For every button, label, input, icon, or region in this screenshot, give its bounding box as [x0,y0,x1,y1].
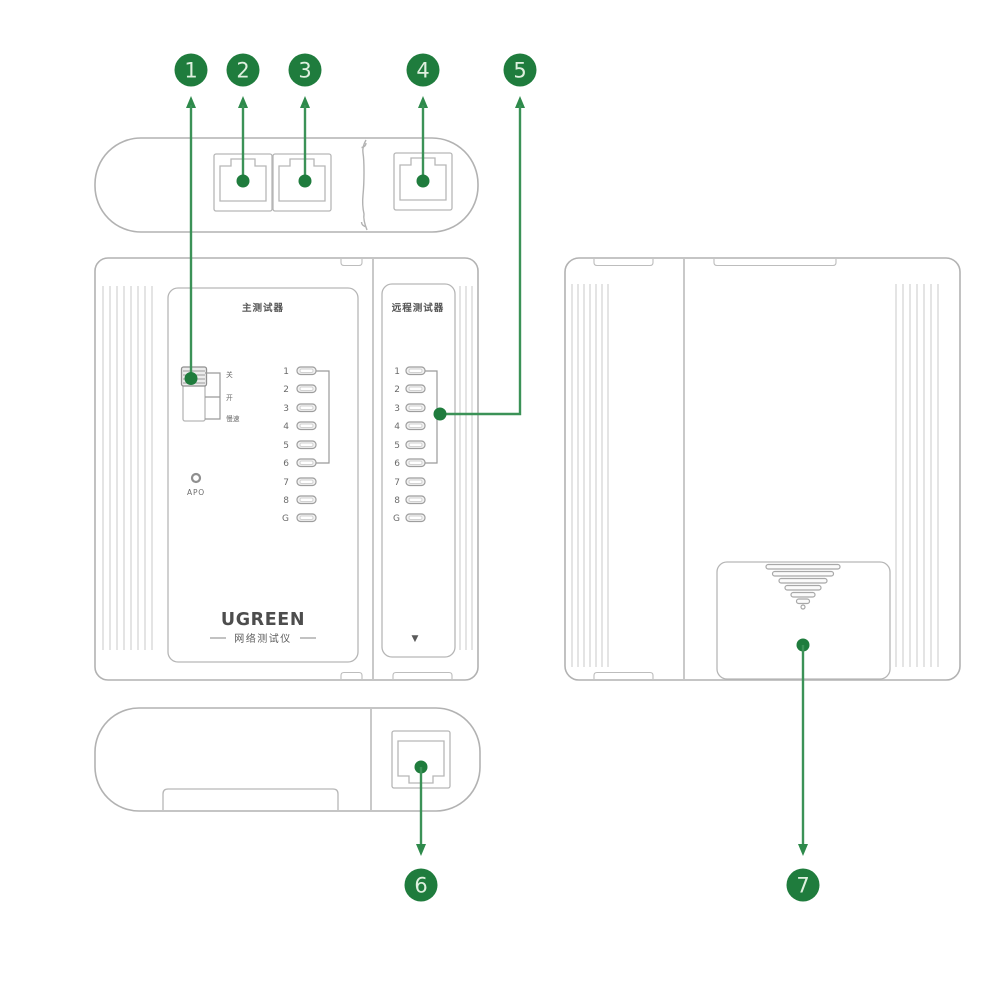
switch-label-off: 关 [226,370,233,379]
led-label: 5 [283,441,289,451]
product-diagram: 主测试器 关 开 慢速 APO 1 [0,0,1000,1000]
grip-ridges-left [103,286,152,650]
led-label: 2 [283,385,289,395]
callout-number-2: 2 [236,59,249,83]
led-label: 3 [394,404,400,414]
led-indicator-inner [300,387,313,391]
led-indicator-inner [409,480,422,484]
switch-label-on: 开 [226,394,233,402]
grip-ridges-remote-right [460,286,472,650]
callout-dot-port2 [299,175,312,188]
apo-label: APO [187,488,205,497]
led-label: 6 [394,459,400,469]
brand-subtitle: 网络测试仪 [234,632,292,645]
led-label: 1 [394,367,400,377]
callout-badge-7: 7 [787,869,820,902]
callout-badge-2: 2 [227,54,260,87]
remote-panel-title: 远程测试器 [392,302,445,314]
clip-tab [594,259,653,266]
led-label: 7 [283,478,289,488]
led-label: 1 [283,367,289,377]
led-indicator-inner [300,498,313,502]
clip-tab [341,673,362,680]
led-label: 4 [283,422,289,432]
clip-tab [594,673,653,680]
bottom-view-body [95,708,480,811]
led-label: 3 [283,404,289,414]
callout-badge-4: 4 [407,54,440,87]
callout-dot-port1 [237,175,250,188]
led-indicator-inner [409,406,422,410]
brand-logo: UGREEN [221,610,305,630]
front-view: 主测试器 关 开 慢速 APO 1 [95,258,478,680]
led-indicator-inner [300,443,313,447]
callout-badges: 1 2 3 4 5 6 7 [175,54,820,902]
led-indicator-inner [300,480,313,484]
callout-number-5: 5 [513,59,526,83]
callout-badge-1: 1 [175,54,208,87]
remote-led-column: 1 2 3 4 5 6 7 8 G [393,367,437,524]
led-indicator-inner [409,498,422,502]
led-indicator-inner [409,443,422,447]
callout-badge-3: 3 [289,54,322,87]
top-view-seam [363,140,367,230]
remote-panel: 远程测试器 1 2 3 4 5 6 7 8 G [382,284,455,657]
back-view [565,258,960,680]
callout-number-7: 7 [796,874,809,898]
callout-arrow-4 [417,96,430,188]
clip-tab [714,259,836,266]
callout-badge-5: 5 [504,54,537,87]
led-label: 7 [394,478,400,488]
back-view-body [565,258,960,680]
led-group-bracket-main [316,371,329,463]
grip-ridges-back-left [572,284,608,667]
callout-dot-switch [185,372,198,385]
callout-dot-remote-leds [434,408,447,421]
callout-lines [185,96,810,856]
led-label: G [282,514,289,524]
led-label: 4 [394,422,400,432]
switch-position-bracket [205,373,220,419]
insert-direction-arrow-icon: ▼ [412,634,419,644]
led-indicator-inner [300,461,313,465]
led-indicator-inner [300,424,313,428]
main-led-column: 1 2 3 4 5 6 7 8 G [282,367,329,524]
led-label: 2 [394,385,400,395]
led-label: 5 [394,441,400,451]
led-indicator-inner [300,516,313,520]
led-indicator-inner [300,406,313,410]
remote-panel-face [382,284,455,657]
callout-arrow-1 [185,96,198,385]
callout-number-4: 4 [416,59,429,83]
callout-arrow-6 [415,761,428,857]
network-tester-diagram: 主测试器 关 开 慢速 APO 1 [0,0,1000,1000]
callout-arrow-3 [299,96,312,188]
led-label: G [393,514,400,524]
grip-ridges-back-right [896,284,938,667]
led-label: 8 [283,496,289,506]
callout-arrow-7 [797,639,810,857]
callout-number-6: 6 [414,874,427,898]
callout-dot-port3 [417,175,430,188]
led-label: 6 [283,459,289,469]
apo-led [192,474,200,482]
led-indicator-inner [300,369,313,373]
callout-badge-6: 6 [405,869,438,902]
callout-number-3: 3 [298,59,311,83]
main-panel-title: 主测试器 [242,302,284,314]
led-indicator-inner [409,424,422,428]
led-indicator-inner [409,516,422,520]
switch-label-slow: 慢速 [226,414,240,423]
led-indicator-inner [409,369,422,373]
label-recess [163,789,338,810]
clip-tab [393,673,452,680]
led-indicator-inner [409,461,422,465]
bottom-view [95,708,480,811]
led-label: 8 [394,496,400,506]
clip-tab [341,259,362,266]
main-panel: 主测试器 关 开 慢速 APO 1 [168,288,358,662]
led-indicator-inner [409,387,422,391]
callout-number-1: 1 [184,59,197,83]
battery-cover-grip-icon [766,565,840,610]
callout-arrow-2 [237,96,250,188]
